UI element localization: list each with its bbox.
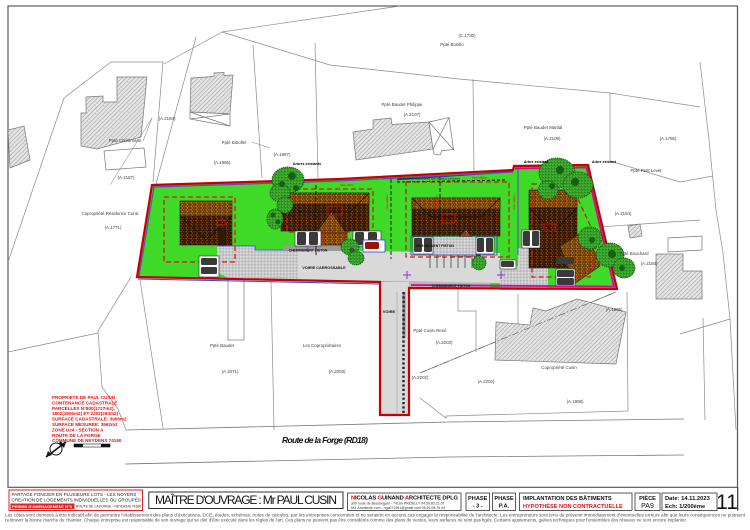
svg-text:ENROBEMENT PIETON: ENROBEMENT PIETON <box>416 244 454 248</box>
svg-text:(A.2107): (A.2107) <box>404 112 421 117</box>
svg-text:EP pluviales raccordées aux ré: EP pluviales raccordées aux réseaux exis… <box>398 177 460 181</box>
svg-text:Ppté Cusin René: Ppté Cusin René <box>413 328 447 333</box>
svg-text:CONTENANCE CADASTRALE: CONTENANCE CADASTRALE <box>52 400 117 405</box>
svg-text:(A.2108): (A.2108) <box>544 136 561 141</box>
svg-text:haie câblé: haie câblé <box>340 183 354 187</box>
svg-text:(A.2184): (A.2184) <box>159 116 176 121</box>
svg-text:CREATION DE LOGEMENTS INDIVID: CREATION DE LOGEMENTS INDIVIDUELLES OU G… <box>12 497 141 503</box>
svg-text:Ppté Bouchard: Ppté Bouchard <box>619 251 649 256</box>
svg-text:ROUTE DE LA FORGE: ROUTE DE LA FORGE <box>52 433 101 438</box>
svg-text:PARCELLES N°800(1727m2),: PARCELLES N°800(1727m2), <box>52 406 115 411</box>
svg-text:- 3 -: - 3 - <box>473 504 483 510</box>
svg-text:Ppté Christmann: Ppté Christmann <box>109 138 142 143</box>
svg-text:PA9: PA9 <box>641 503 654 510</box>
svg-text:Ppté Baudet Philippe: Ppté Baudet Philippe <box>381 102 423 107</box>
svg-text:haie taillée: haie taillée <box>434 195 438 210</box>
svg-text:t'entraver la bonne marche du: t'entraver la bonne marche du chantier. … <box>5 518 687 523</box>
svg-text:NG-Architecte.com - nga071951@: NG-Architecte.com - nga071951@gmail.com … <box>351 506 445 510</box>
svg-text:Ppté Baudet: Ppté Baudet <box>210 343 235 348</box>
svg-text:P.A.: P.A. <box>499 504 510 510</box>
svg-text:(A.2071): (A.2071) <box>222 369 239 374</box>
svg-text:haie taillée: haie taillée <box>385 195 389 210</box>
svg-text:SURFACE CADASTRALE: 3906m2: SURFACE CADASTRALE: 3906m2 <box>52 417 127 422</box>
svg-text:IMPLANTATION DES BÂTIMENTS: IMPLANTATION DES BÂTIMENTS <box>523 495 612 502</box>
svg-text:CHEMINEMENT PIETON: CHEMINEMENT PIETON <box>289 249 328 253</box>
svg-text:Arbre existant: Arbre existant <box>592 160 617 164</box>
svg-text:(A.1771): (A.1771) <box>105 225 122 230</box>
svg-text:Ech: 1/200ème: Ech: 1/200ème <box>665 504 706 510</box>
svg-text:CHEMINEMENT PIETON: CHEMINEMENT PIETON <box>432 284 471 288</box>
svg-text:VOIRIE CARROSSABLE: VOIRIE CARROSSABLE <box>302 266 346 270</box>
svg-text:PHASE: PHASE <box>494 496 514 502</box>
svg-text:(A.2202): (A.2202) <box>412 375 429 380</box>
svg-text:(A.1895): (A.1895) <box>606 307 623 312</box>
svg-text:(A.2203): (A.2203) <box>436 340 453 345</box>
svg-text:(A.2187): (A.2187) <box>118 175 135 180</box>
svg-text:PROPRIETE DE PAUL CUSIN: PROPRIETE DE PAUL CUSIN <box>52 395 116 400</box>
svg-text:(A.1786): (A.1786) <box>660 136 677 141</box>
svg-text:(C.1730): (C.1730) <box>458 33 476 38</box>
svg-text:1802(1805m2) ET 2202(294m2): 1802(1805m2) ET 2202(294m2) <box>52 411 119 416</box>
svg-text:(A.1898): (A.1898) <box>567 399 584 404</box>
svg-text:(A.2194): (A.2194) <box>615 211 632 216</box>
svg-text:COMMUNE DE NEYDENS 74160: COMMUNE DE NEYDENS 74160 <box>52 438 122 443</box>
svg-text:11: 11 <box>716 491 738 514</box>
svg-text:Arbre existant: Arbre existant <box>524 160 549 164</box>
svg-text:PIÈCE: PIÈCE <box>639 494 656 502</box>
svg-text:HYPOTHÈSE NON CONTRACTUELLE: HYPOTHÈSE NON CONTRACTUELLE <box>523 502 623 510</box>
svg-text:VOIRE: VOIRE <box>383 309 396 314</box>
svg-text:Arbres existants: Arbres existants <box>293 162 321 166</box>
svg-text:haie câblée: haie câblée <box>472 176 488 180</box>
svg-text:(A.1986): (A.1986) <box>214 160 231 165</box>
svg-text:Copropriété Résidence Curat: Copropriété Résidence Curat <box>82 211 140 216</box>
svg-text:Copropriété Cusin: Copropriété Cusin <box>541 365 577 370</box>
svg-text:Ppté Petit Levet: Ppté Petit Levet <box>631 168 663 173</box>
svg-text:PARTAGE FONCIER EN PLUSIEURS L: PARTAGE FONCIER EN PLUSIEURS LOTS - LES … <box>12 492 137 497</box>
svg-text:SURFACE MESURÉE: 3962m2: SURFACE MESURÉE: 3962m2 <box>52 420 118 427</box>
svg-text:Date: 14.11.2023: Date: 14.11.2023 <box>665 496 711 502</box>
svg-text:(A.2202): (A.2202) <box>478 379 495 384</box>
svg-text:MAÎTRE D'OUVRAGE : Mr PAUL CU: MAÎTRE D'OUVRAGE : Mr PAUL CUSIN <box>155 492 337 507</box>
svg-text:PERMIS D'AMENAGEMENT N°5: PERMIS D'AMENAGEMENT N°5 <box>12 504 73 509</box>
svg-text:Ppté Baudet Martial: Ppté Baudet Martial <box>524 125 563 130</box>
svg-text:LOT 4: LOT 4 <box>583 269 592 273</box>
svg-text:ZONE Uc4 - SECTION A: ZONE Uc4 - SECTION A <box>52 427 104 432</box>
svg-text:(A.1987): (A.1987) <box>274 152 291 157</box>
svg-text:PHASE: PHASE <box>468 496 488 502</box>
svg-text:Ppté Bibollet: Ppté Bibollet <box>222 140 247 145</box>
svg-text:Les Copropriétaires: Les Copropriétaires <box>303 343 342 348</box>
svg-text:(A.2193): (A.2193) <box>641 261 658 266</box>
svg-text:Ppté Bonillo: Ppté Bonillo <box>440 42 464 47</box>
svg-text:(A.2003): (A.2003) <box>329 369 346 374</box>
svg-text:Route de la Forge (RD18): Route de la Forge (RD18) <box>282 435 368 445</box>
svg-text:ROUTE DE LA FORGE - NEYDENS: ROUTE DE LA FORGE - NEYDENS 74160 <box>76 505 141 509</box>
svg-text:haie taillée: haie taillée <box>512 195 516 210</box>
svg-text:P: P <box>505 263 508 268</box>
